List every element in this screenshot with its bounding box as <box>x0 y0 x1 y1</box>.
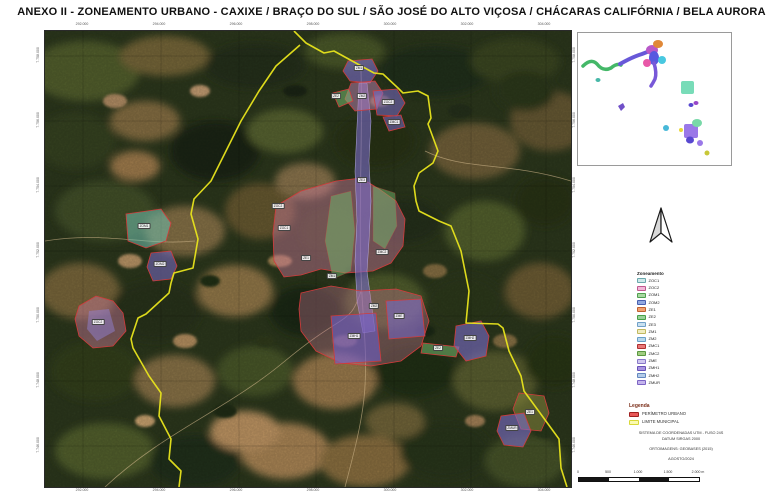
coord-label: 304.000 <box>538 488 551 492</box>
legend-item: ZOM2 <box>637 300 717 305</box>
scale-bar-label: 1.500 <box>664 470 673 474</box>
inset-zones <box>578 33 731 165</box>
legend-item-label: ZE1 <box>649 308 656 312</box>
legend-item-label: ZOC1 <box>649 279 660 283</box>
coord-label: 300.000 <box>384 22 397 26</box>
coord-label: 7.756.000 <box>36 112 40 128</box>
legend-swatch <box>637 293 646 298</box>
scale-bar-label: 0 <box>577 470 579 474</box>
legend-item: ZMH1 <box>637 366 717 371</box>
legend-item: ZE3 <box>637 322 717 327</box>
legend-item: ZE2 <box>637 315 717 320</box>
metadata-datum: DATUM SIRGAS 2000 <box>592 437 770 443</box>
inset-map <box>577 32 732 166</box>
legend-swatch <box>637 278 646 283</box>
legend-item-label: ZM1 <box>649 330 657 334</box>
lines-legend-items: PERÍMETRO URBANOLIMITE MUNICIPAL <box>629 412 739 426</box>
legend-swatch <box>637 315 646 320</box>
scale-bar-label: 1.000 <box>634 470 643 474</box>
scale-bar-label: 2.000 m <box>692 470 705 474</box>
legend-item-label: ZOM1 <box>649 293 660 297</box>
lines-legend-title: Legenda <box>629 403 739 409</box>
legend-item: ZME <box>637 359 717 364</box>
legend-item: ZOM1 <box>637 293 717 298</box>
coord-label: 7.748.000 <box>572 372 576 388</box>
coord-label: 7.752.000 <box>36 242 40 258</box>
coord-label: 7.750.000 <box>572 307 576 323</box>
coord-label: 7.758.000 <box>572 47 576 63</box>
coord-label: 302.000 <box>461 22 474 26</box>
coord-label: 302.000 <box>461 488 474 492</box>
scale-bar <box>578 477 700 482</box>
legend-swatch <box>637 329 646 334</box>
legend-item: ZOC1 <box>637 278 717 283</box>
legend-swatch <box>637 351 646 356</box>
legend-item-label: ZOM2 <box>649 301 660 305</box>
coord-label: 7.746.000 <box>572 437 576 453</box>
legend-item: ZMC1 <box>637 344 717 349</box>
legend-swatch <box>637 300 646 305</box>
coord-label: 7.748.000 <box>36 372 40 388</box>
legend-item-label: ZMUR <box>649 381 661 385</box>
legend-item: ZOC2 <box>637 286 717 291</box>
legend-swatch <box>637 344 646 349</box>
legend-item-label: ZOC2 <box>649 286 660 290</box>
legend-item-label: ZE3 <box>649 323 656 327</box>
coord-label: 296.000 <box>230 22 243 26</box>
legend-item-label: ZM2 <box>649 337 657 341</box>
legend-item: ZM2 <box>637 337 717 342</box>
legend-swatch <box>637 380 646 385</box>
coord-label: 300.000 <box>384 488 397 492</box>
legend-item-label: ZMC1 <box>649 344 660 348</box>
legend-swatch <box>629 412 639 418</box>
legend-swatch <box>637 373 646 378</box>
lines-legend: Legenda PERÍMETRO URBANOLIMITE MUNICIPAL <box>629 403 739 425</box>
main-map <box>44 30 572 488</box>
coord-label: 7.750.000 <box>36 307 40 323</box>
metadata-note: SISTEMA DE COORDENADAS UTM - FUSO 24S DA… <box>592 431 770 463</box>
coord-label: 298.000 <box>307 22 320 26</box>
legend-swatch <box>629 420 639 426</box>
coord-label: 7.756.000 <box>572 112 576 128</box>
legend-item: ZMC2 <box>637 351 717 356</box>
metadata-ortho: ORTOIMAGENS: GEOBASES (2015) <box>592 447 770 453</box>
legend-swatch <box>637 307 646 312</box>
legend-item-label: LIMITE MUNICIPAL <box>642 420 679 424</box>
legend-item: PERÍMETRO URBANO <box>629 412 739 418</box>
satellite-image <box>45 31 571 487</box>
legend-item: LIMITE MUNICIPAL <box>629 420 739 426</box>
legend-item: ZE1 <box>637 307 717 312</box>
coord-label: 294.000 <box>153 488 166 492</box>
coord-label: 298.000 <box>307 488 320 492</box>
map-title: ANEXO II - ZONEAMENTO URBANO - CAXIXE / … <box>0 6 783 18</box>
legend-item-label: ZE2 <box>649 315 656 319</box>
zoning-legend-title: Zoneamento <box>637 271 717 276</box>
scale-bar-label: 500 <box>605 470 611 474</box>
north-arrow-icon <box>648 206 674 246</box>
coord-label: 304.000 <box>538 22 551 26</box>
legend-item-label: ZME <box>649 359 657 363</box>
legend-item-label: ZMH2 <box>649 374 660 378</box>
coord-label: 7.758.000 <box>36 47 40 63</box>
coord-label: 294.000 <box>153 22 166 26</box>
legend-swatch <box>637 322 646 327</box>
legend-swatch <box>637 337 646 342</box>
zoning-legend-items: ZOC1ZOC2ZOM1ZOM2ZE1ZE2ZE3ZM1ZM2ZMC1ZMC2Z… <box>637 278 717 385</box>
coord-label: 7.746.000 <box>36 437 40 453</box>
coord-label: 7.754.000 <box>36 177 40 193</box>
legend-swatch <box>637 286 646 291</box>
legend-swatch <box>637 359 646 364</box>
metadata-date: AGOSTO/2024 <box>592 457 770 463</box>
legend-item: ZMUR <box>637 380 717 385</box>
coord-label: 7.752.000 <box>572 242 576 258</box>
coord-label: 292.000 <box>76 488 89 492</box>
coord-label: 292.000 <box>76 22 89 26</box>
legend-swatch <box>637 366 646 371</box>
legend-item: ZM1 <box>637 329 717 334</box>
legend-item-label: ZMH1 <box>649 366 660 370</box>
legend-item: ZMH2 <box>637 373 717 378</box>
legend-item-label: PERÍMETRO URBANO <box>642 412 686 416</box>
legend-item-label: ZMC2 <box>649 352 660 356</box>
coord-label: 7.754.000 <box>572 177 576 193</box>
zoning-legend: Zoneamento ZOC1ZOC2ZOM1ZOM2ZE1ZE2ZE3ZM1Z… <box>637 271 717 385</box>
coord-label: 296.000 <box>230 488 243 492</box>
